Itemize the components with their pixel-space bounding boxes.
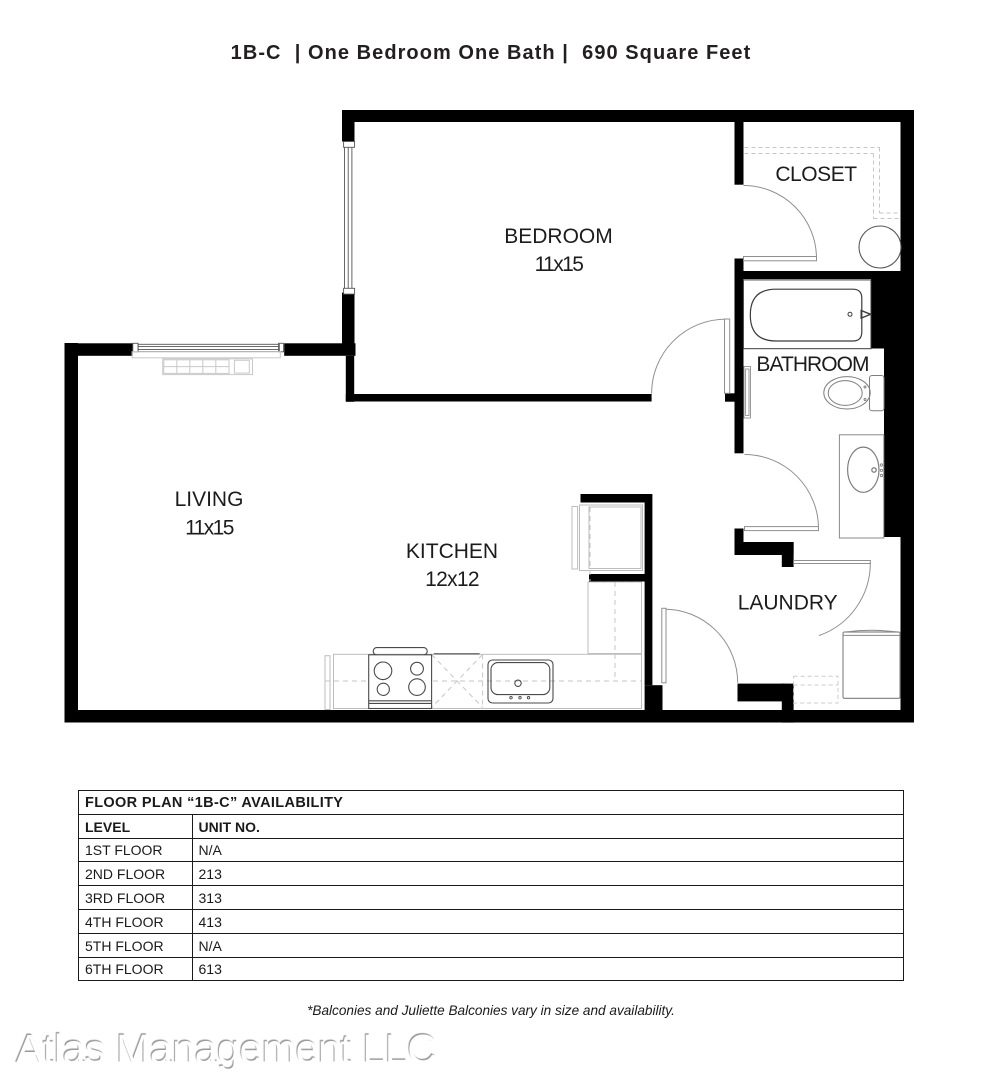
svg-text:LIVING: LIVING xyxy=(175,488,244,511)
svg-text:11x15: 11x15 xyxy=(535,253,584,276)
svg-text:12x12: 12x12 xyxy=(425,568,479,591)
svg-text:KITCHEN: KITCHEN xyxy=(406,540,498,563)
svg-text:CLOSET: CLOSET xyxy=(775,163,857,186)
svg-text:LAUNDRY: LAUNDRY xyxy=(738,592,838,615)
svg-text:11x15: 11x15 xyxy=(185,517,234,540)
svg-text:BATHROOM: BATHROOM xyxy=(756,353,868,376)
svg-text:BEDROOM: BEDROOM xyxy=(504,225,613,248)
